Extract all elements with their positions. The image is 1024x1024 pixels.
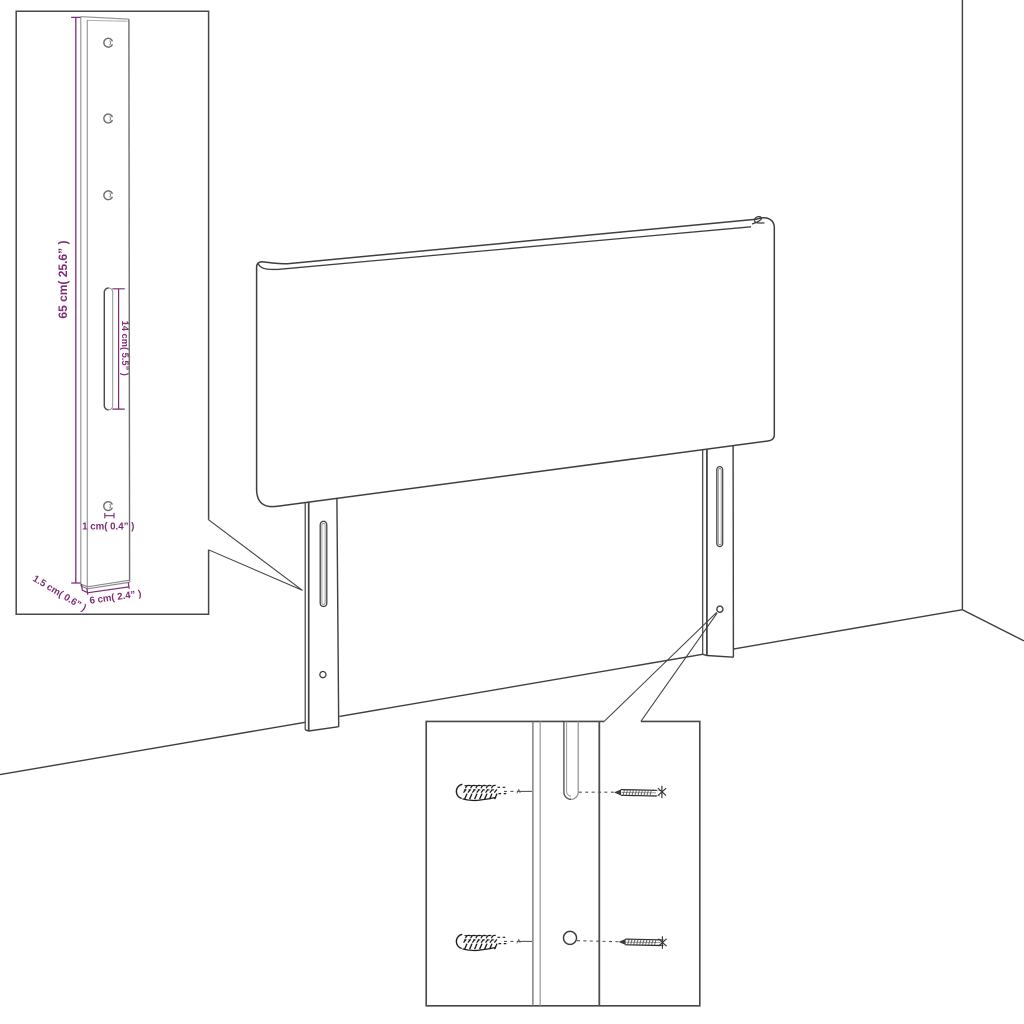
svg-text:14 cm( 5.5” ): 14 cm( 5.5” ) bbox=[120, 321, 130, 376]
svg-text:1 cm( 0.4” ): 1 cm( 0.4” ) bbox=[82, 521, 134, 532]
svg-text:65 cm( 25.6” ): 65 cm( 25.6” ) bbox=[56, 241, 70, 319]
